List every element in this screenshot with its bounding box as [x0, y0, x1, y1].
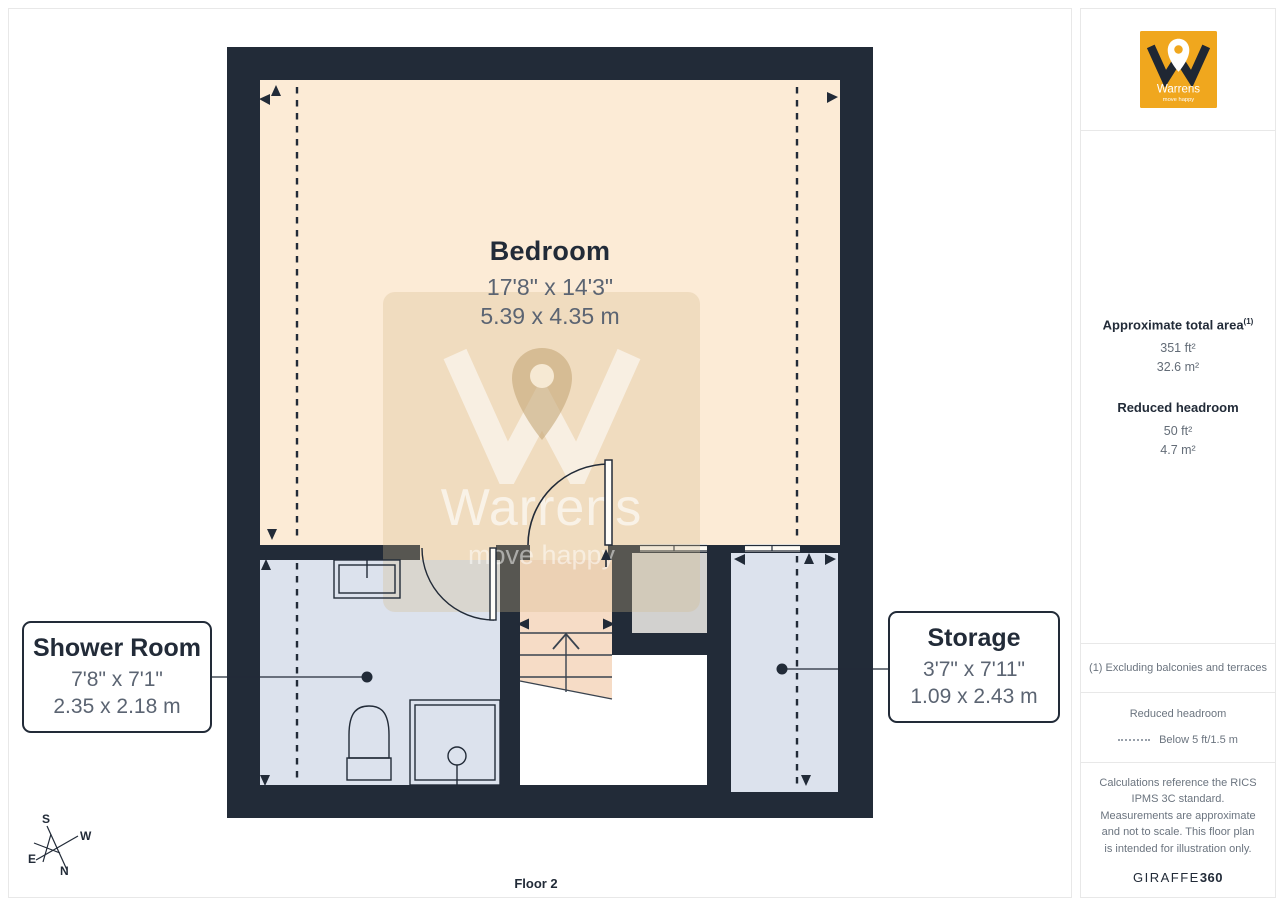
total-area-m: 32.6 m²	[1157, 360, 1199, 374]
sink-icon	[334, 560, 400, 598]
area-info-section: Approximate total area(1) 351 ft² 32.6 m…	[1081, 131, 1275, 644]
bedroom-dims-metric: 5.39 x 4.35 m	[375, 302, 725, 331]
legend-title: Reduced headroom	[1130, 706, 1227, 723]
logo-brand-text: Warrens	[1156, 84, 1199, 96]
dashed-line-sample-icon	[1118, 739, 1150, 741]
info-sidebar: Warrens move happy Approximate total are…	[1080, 8, 1276, 898]
bedroom-door	[528, 460, 612, 545]
total-area-title: Approximate total area(1)	[1103, 317, 1254, 332]
bedroom-dims-imperial: 17'8" x 14'3"	[375, 273, 725, 302]
storage-dims-metric: 1.09 x 2.43 m	[910, 683, 1037, 710]
toilet-icon	[347, 706, 391, 780]
storage-name: Storage	[927, 624, 1020, 653]
shower-room-dims-imperial: 7'8" x 7'1"	[53, 666, 180, 693]
bedroom-label: Bedroom 17'8" x 14'3" 5.39 x 4.35 m	[375, 236, 725, 331]
total-area-ft: 351 ft²	[1160, 341, 1195, 355]
footnote-text: (1) Excluding balconies and terraces	[1089, 660, 1267, 677]
logo-section: Warrens move happy	[1081, 9, 1275, 131]
logo-tagline-text: move happy	[1162, 97, 1194, 103]
compass-east-label: E	[28, 852, 36, 866]
disclaimer-text: Calculations reference the RICS IPMS 3C …	[1097, 775, 1259, 858]
shower-room-name: Shower Room	[33, 634, 201, 663]
shower-room-callout: Shower Room 7'8" x 7'1" 2.35 x 2.18 m	[22, 621, 212, 733]
reduced-headroom-arrows	[259, 85, 838, 786]
reduced-headroom-ft: 50 ft²	[1164, 424, 1193, 438]
legend-section: Reduced headroom Below 5 ft/1.5 m	[1081, 693, 1275, 763]
compass-icon	[34, 826, 78, 870]
storage-dims-imperial: 3'7" x 7'11"	[910, 656, 1037, 683]
storage-callout: Storage 3'7" x 7'11" 1.09 x 2.43 m	[888, 611, 1060, 723]
legend-label: Below 5 ft/1.5 m	[1159, 732, 1238, 749]
disclaimer-section: Calculations reference the RICS IPMS 3C …	[1081, 763, 1275, 898]
total-area-footnote-marker: (1)	[1244, 317, 1254, 326]
shower-door	[422, 548, 496, 620]
shower-tray-icon	[410, 700, 500, 785]
shower-room-dims-metric: 2.35 x 2.18 m	[53, 693, 180, 720]
reduced-headroom-lines	[297, 87, 797, 789]
reduced-headroom-m: 4.7 m²	[1160, 443, 1195, 457]
compass-south-label: S	[42, 812, 50, 826]
footnote-section: (1) Excluding balconies and terraces	[1081, 644, 1275, 693]
bedroom-name: Bedroom	[375, 236, 725, 267]
stairs	[520, 633, 612, 699]
floor-label: Floor 2	[0, 876, 1072, 891]
warrens-logo: Warrens move happy	[1140, 31, 1217, 108]
callout-leaders	[212, 664, 888, 683]
compass-west-label: W	[80, 829, 91, 843]
reduced-headroom-title: Reduced headroom	[1117, 400, 1238, 415]
floorplan-page: Warrens move happy	[0, 0, 1280, 906]
giraffe360-brand: GIRAFFE360	[1133, 870, 1223, 885]
